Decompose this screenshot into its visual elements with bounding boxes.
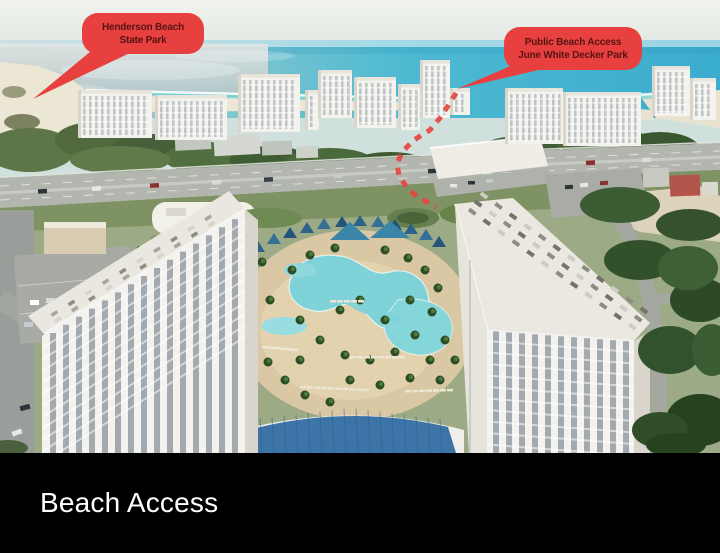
callout-text-line: State Park [120,34,167,47]
photo-caption-title: Beach Access [40,487,218,519]
callout-text-line: Public Beach Access [525,36,621,49]
callout-text-line: June White Decker Park [518,49,628,62]
screenshot: Henderson Beach State Park Public Beach … [0,0,720,553]
callout-henderson-beach-state-park: Henderson Beach State Park [82,13,204,54]
callout-text-line: Henderson Beach [102,21,184,34]
callout-public-beach-access: Public Beach Access June White Decker Pa… [504,27,642,70]
caption-bar: Beach Access [0,453,720,553]
listing-photo: Henderson Beach State Park Public Beach … [0,0,720,453]
